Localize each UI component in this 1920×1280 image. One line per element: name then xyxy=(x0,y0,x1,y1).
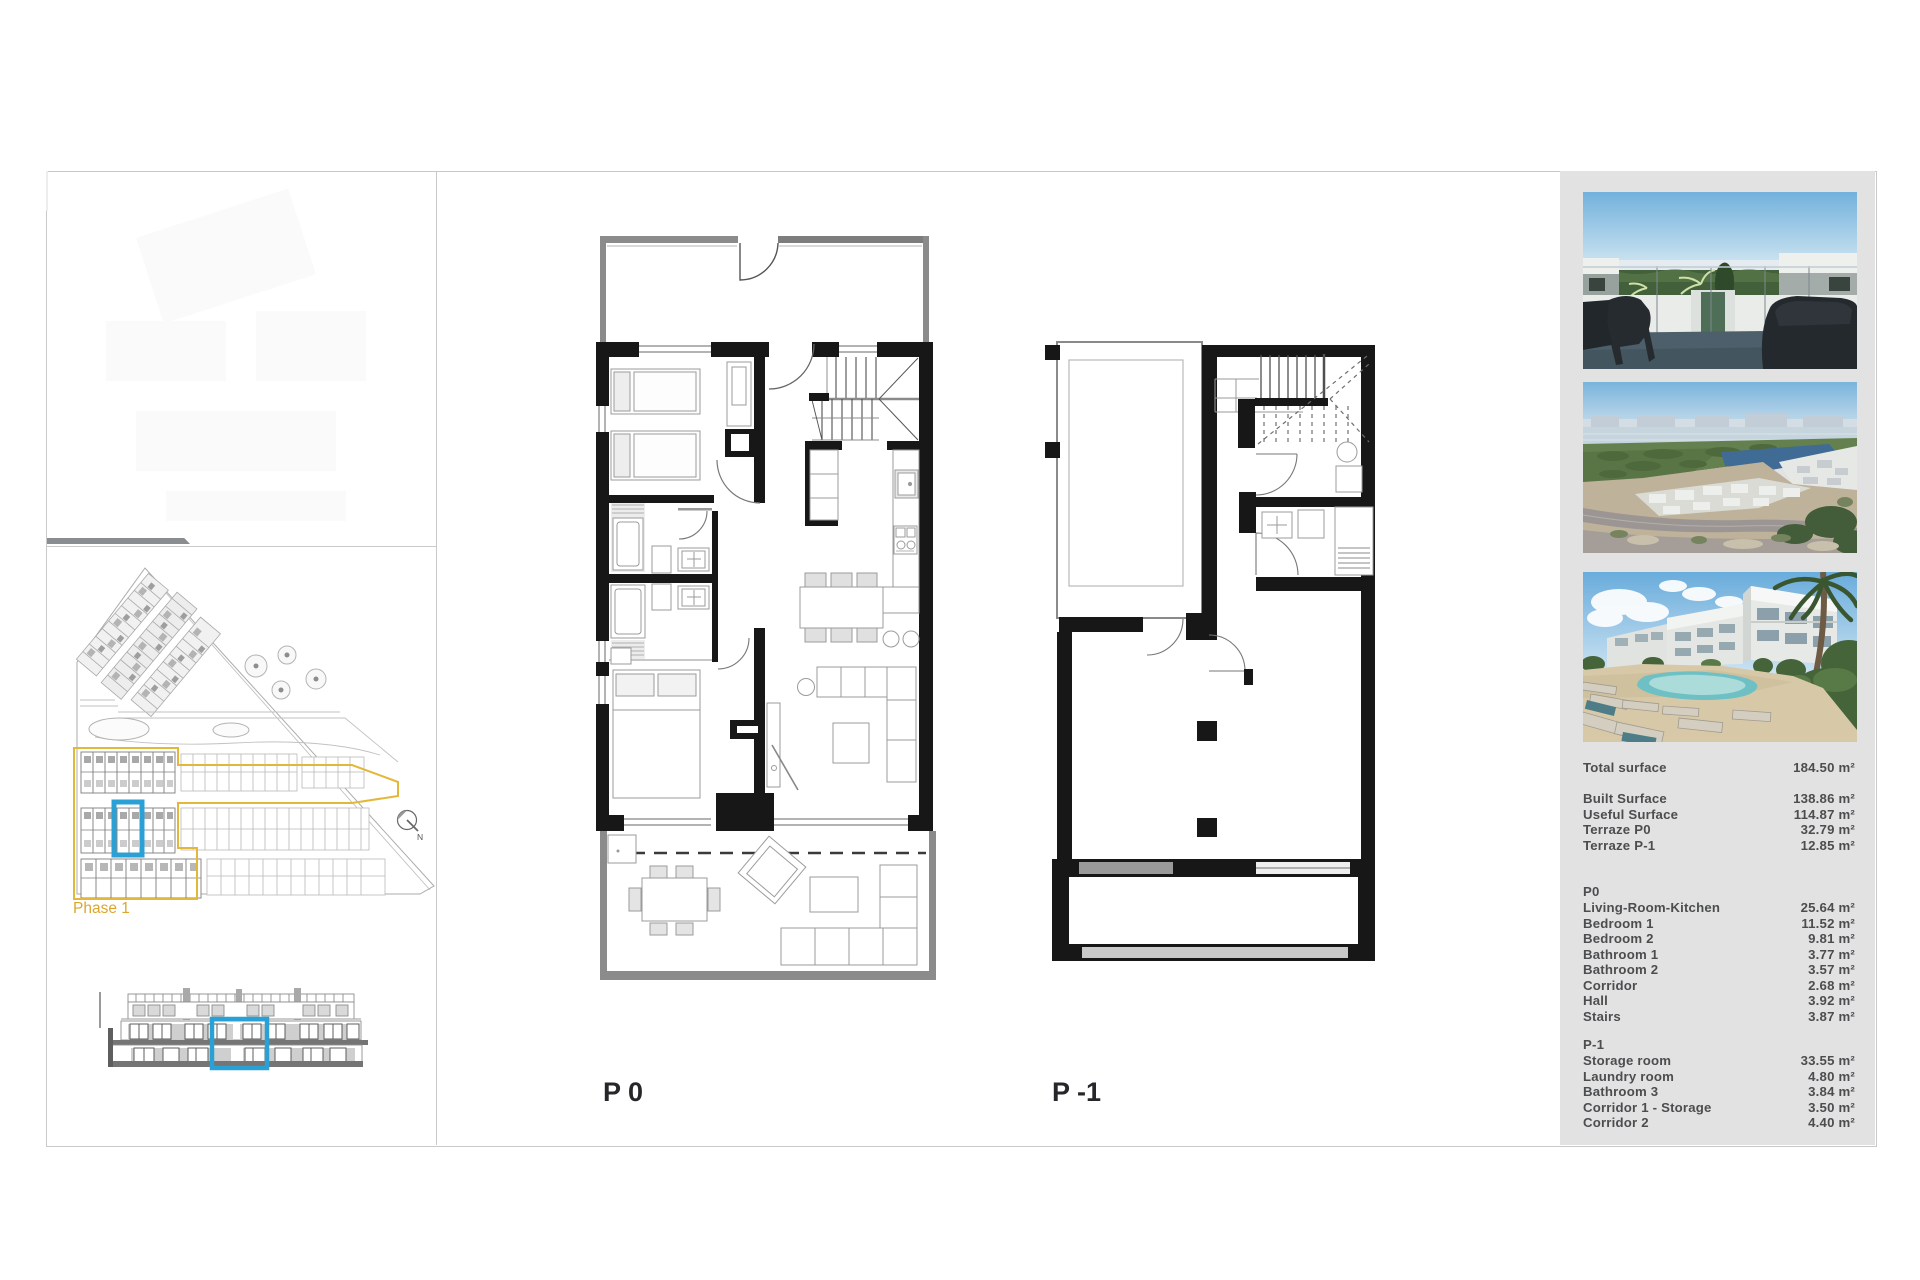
svg-text:Phase 1: Phase 1 xyxy=(73,900,130,917)
svg-text:N: N xyxy=(417,832,423,842)
